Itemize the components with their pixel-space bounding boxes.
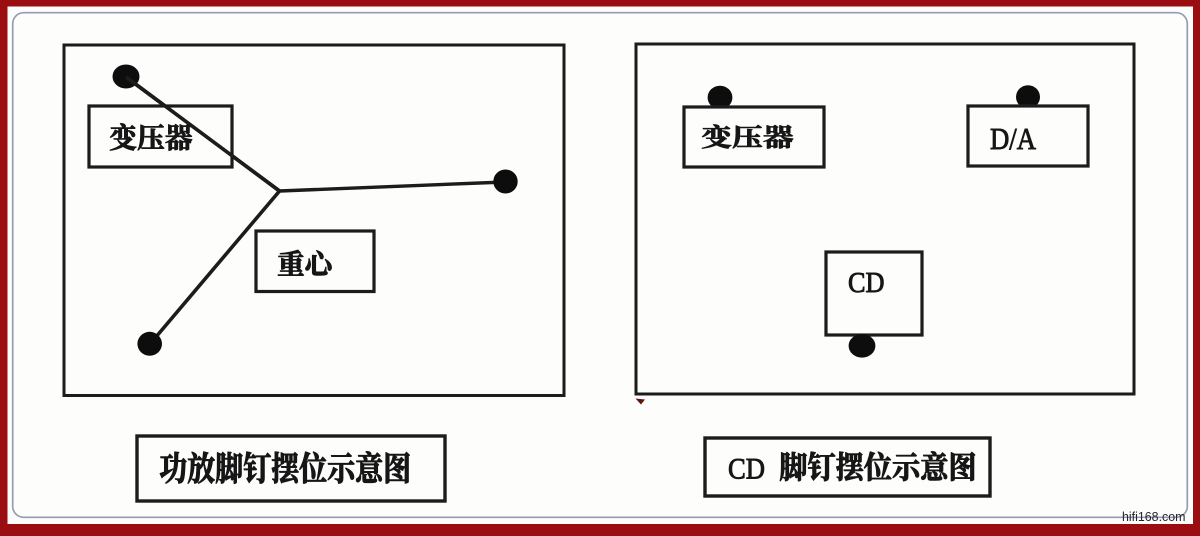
svg-text:CD: CD	[848, 268, 885, 299]
svg-text:D/A: D/A	[990, 121, 1037, 156]
svg-text:hifi168.com: hifi168.com	[1122, 509, 1186, 524]
svg-text:CD: CD	[728, 453, 765, 485]
